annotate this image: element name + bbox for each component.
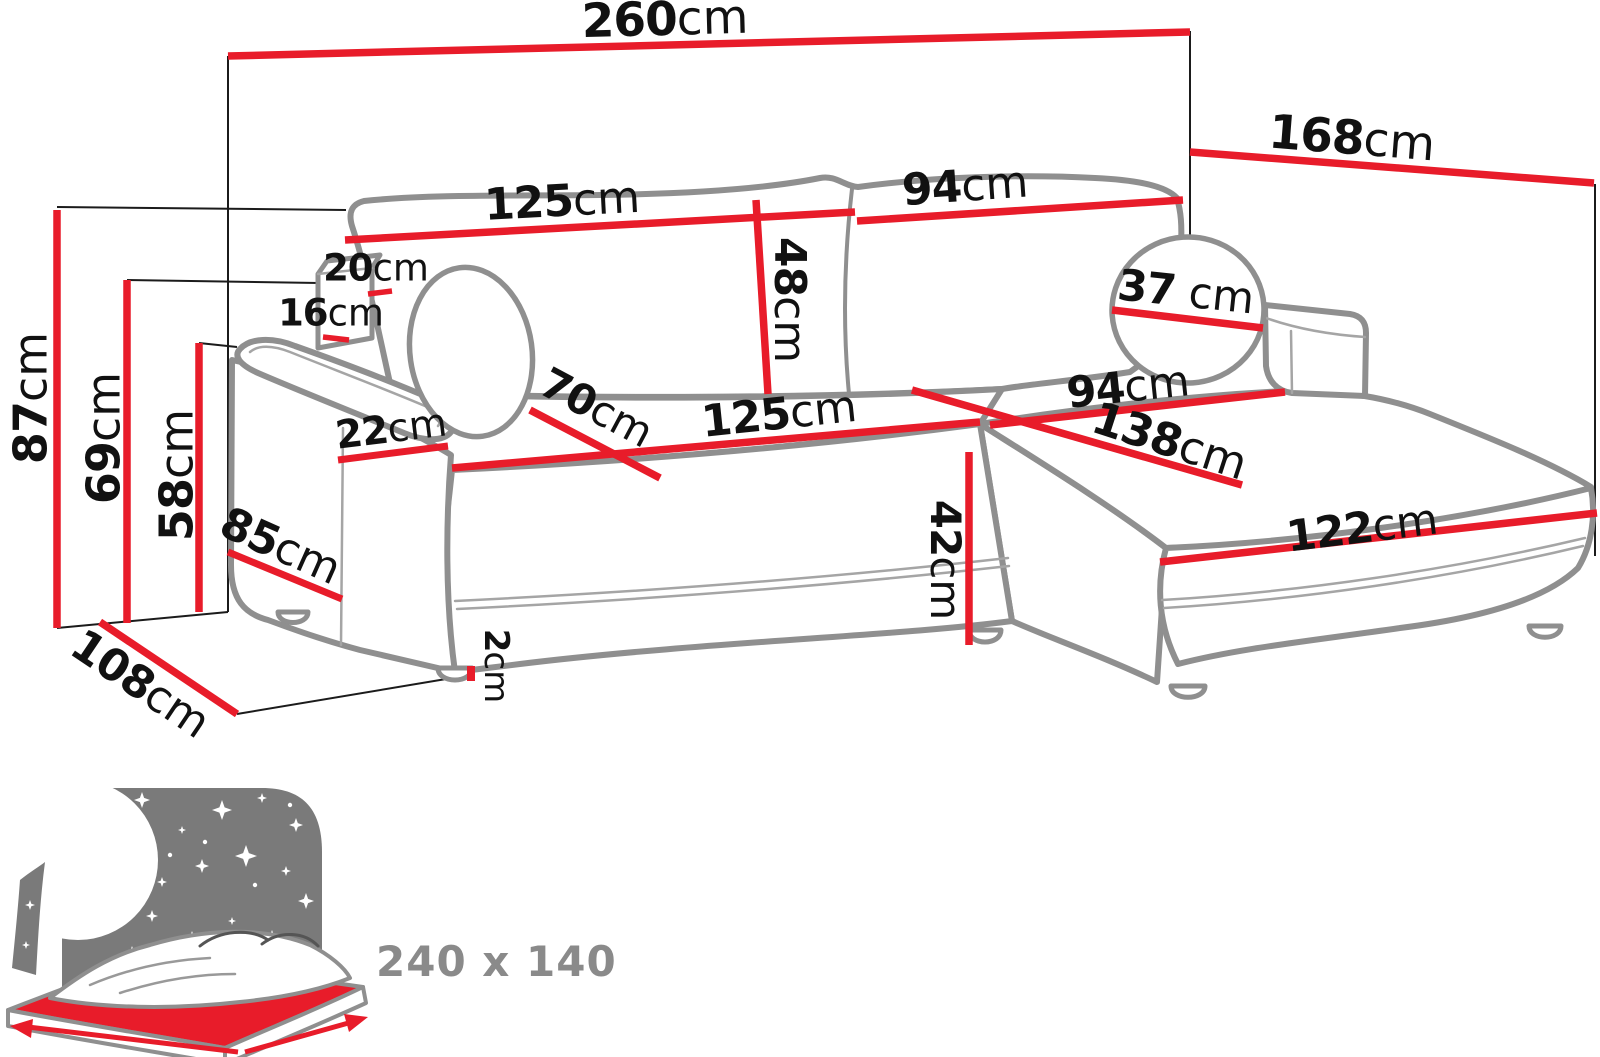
dim-back-cushion-left-label: 125cm [483,172,641,231]
sofa-bed-icon: 240 x 140 [0,780,617,1057]
dim-back-cushion-right-label: 94cm [900,156,1030,216]
dim-height-total-label: 87cm [4,332,58,464]
dim-seat-height-label: 42cm [921,500,970,620]
diagram-canvas: 260cm 168cm 87cm 69cm 58cm 125cm 94cm 48… [0,0,1600,1057]
dim-armrest-top-depth-tick [323,337,349,340]
dim-total-width-label: 260cm [581,0,749,49]
right-shelf [1265,305,1366,396]
bed-size-label: 240 x 140 [376,937,617,986]
dim-height-back-cushion-label: 69cm [77,372,131,504]
sofa-dimension-diagram: 260cm 168cm 87cm 69cm 58cm 125cm 94cm 48… [0,0,1600,1057]
dim-armrest-top-depth-label: 16cm [278,291,384,334]
dim-leg-height-label: 2cm [476,629,516,704]
dim-armrest-top-width-label: 20cm [323,246,429,289]
dim-back-cushion-height-label: 48cm [764,237,815,363]
dim-height-seat-back-label: 58cm [150,409,204,541]
